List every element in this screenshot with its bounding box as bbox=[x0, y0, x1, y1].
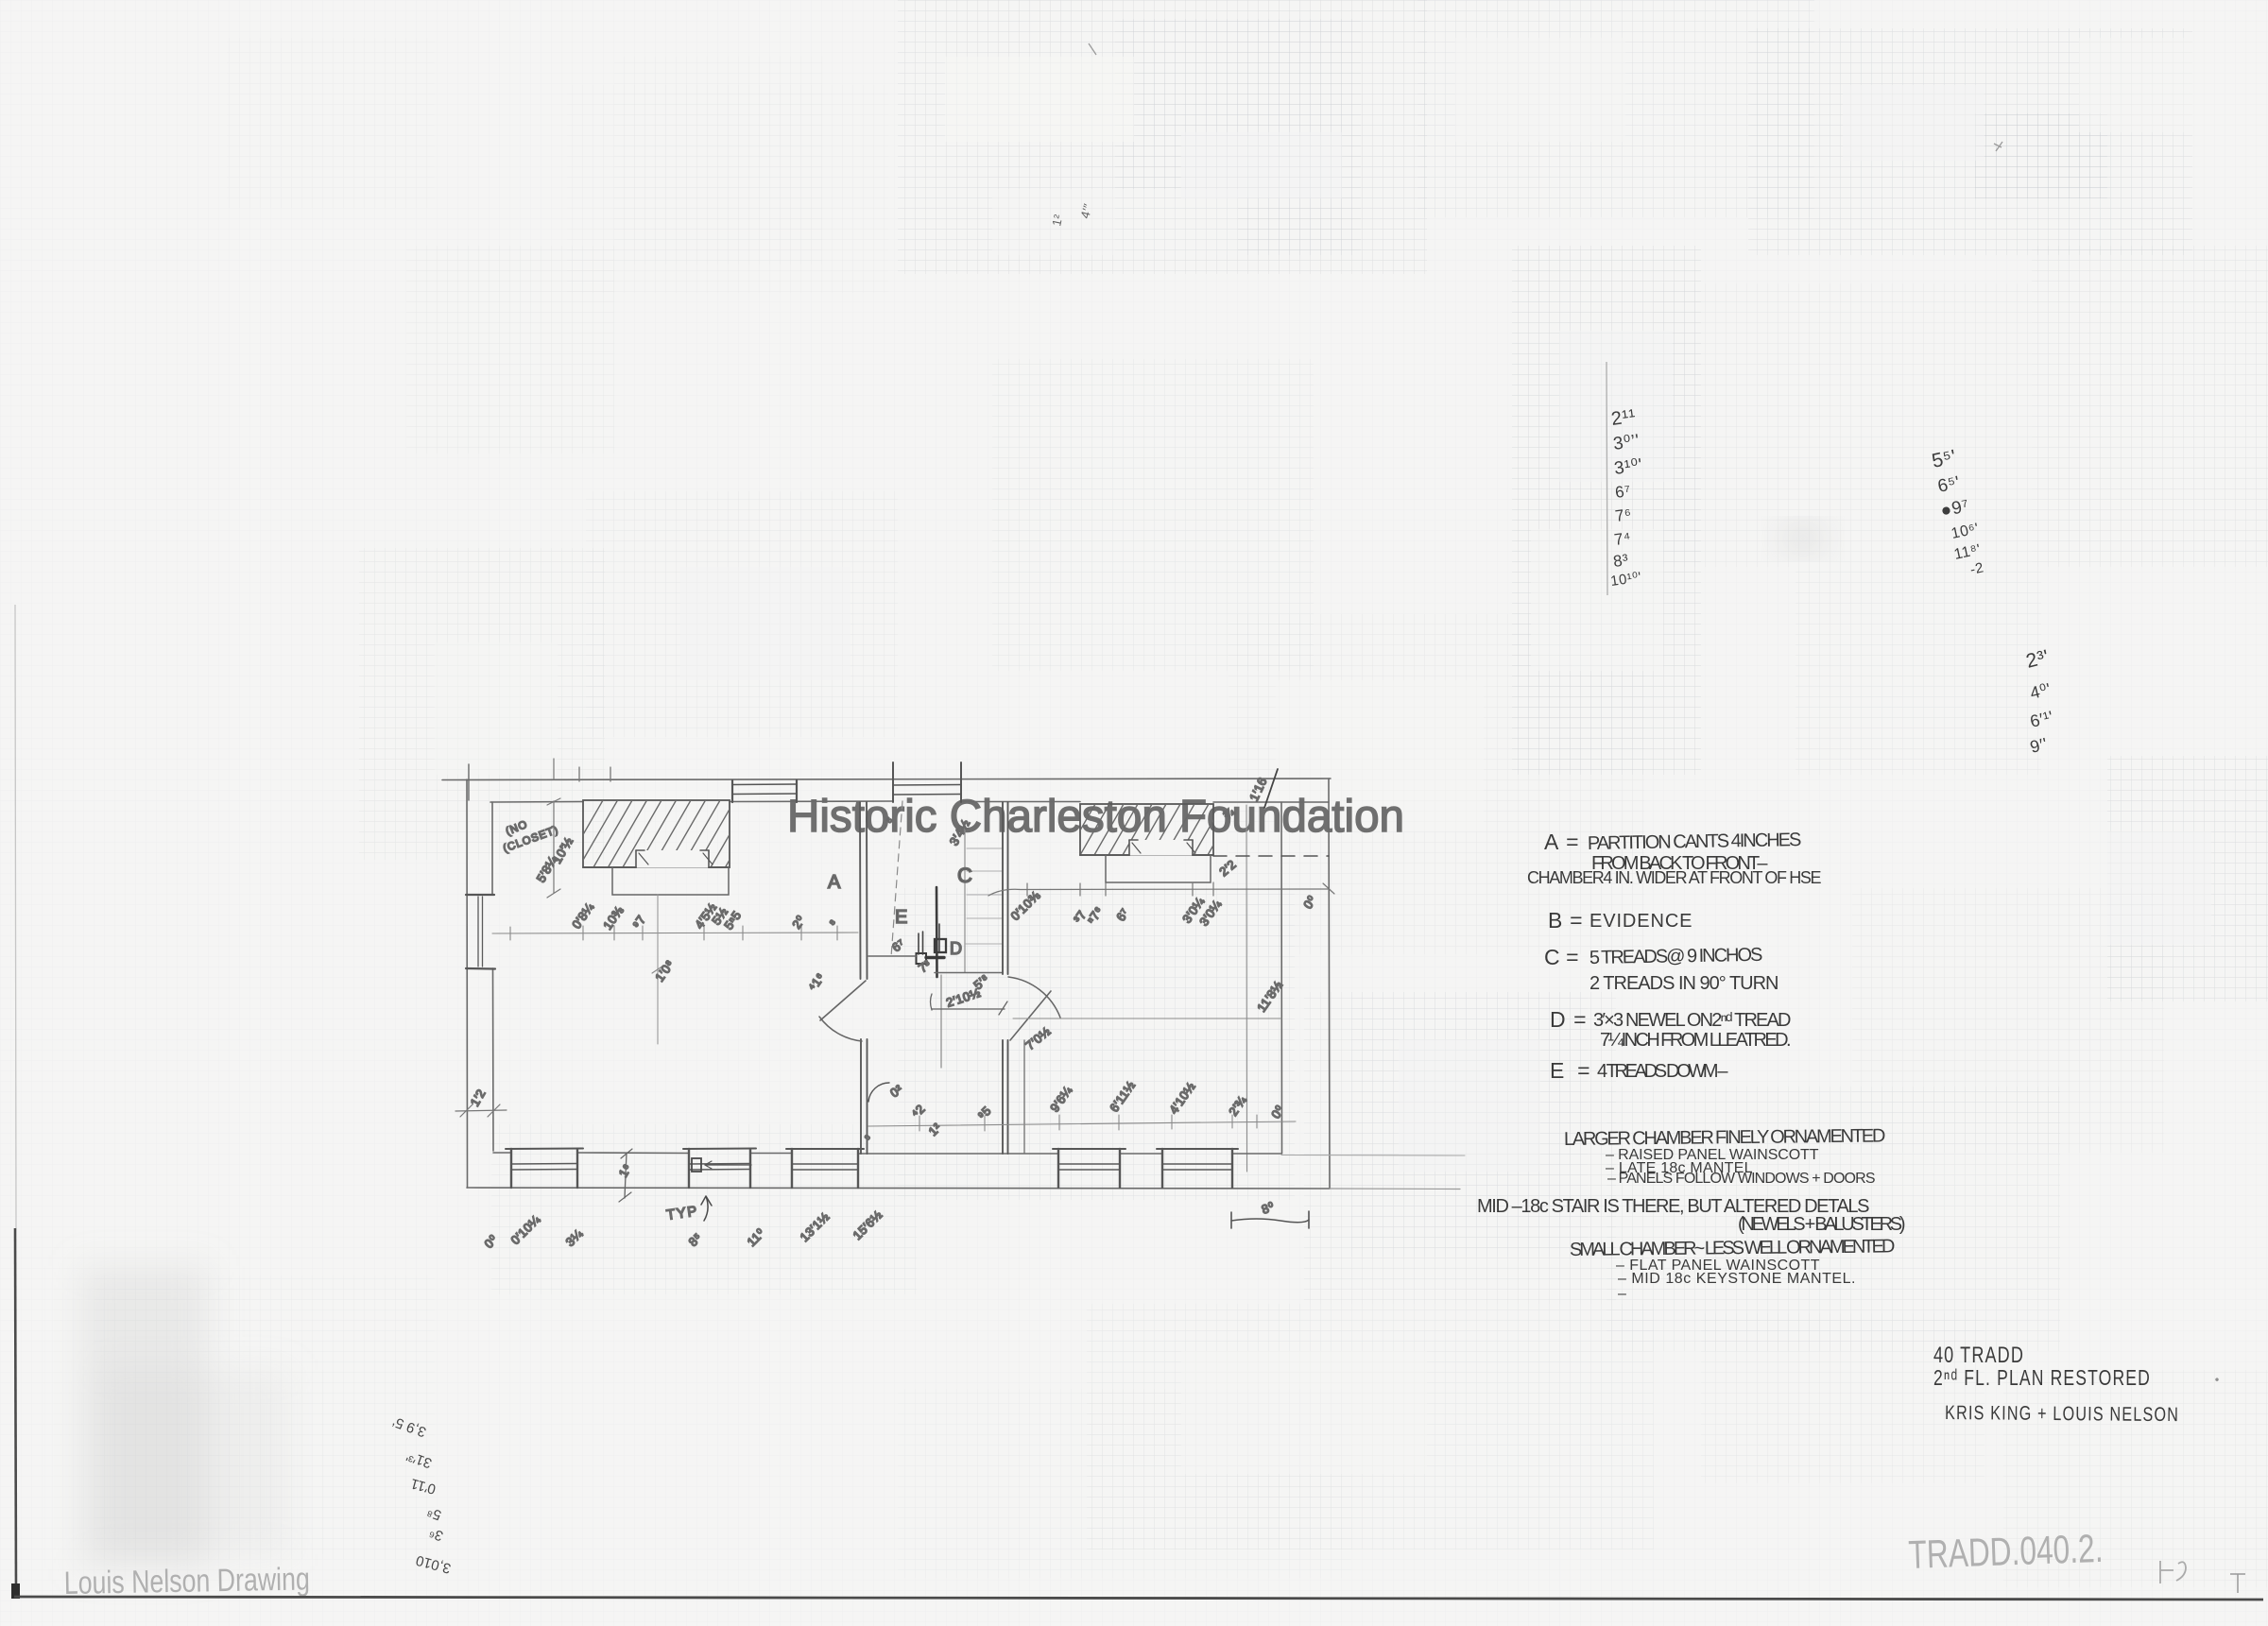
svg-text:8³: 8³ bbox=[1612, 551, 1630, 571]
svg-text:7¼INCH FROM LLEATRED.: 7¼INCH FROM LLEATRED. bbox=[1600, 1030, 1793, 1051]
svg-text:PARTITION CANTS 4INCHES: PARTITION CANTS 4INCHES bbox=[1588, 830, 1803, 854]
svg-text:4 TREADS DOWM –: 4 TREADS DOWM – bbox=[1597, 1061, 1729, 1082]
svg-text:D: D bbox=[950, 939, 963, 958]
svg-text:7⁴: 7⁴ bbox=[1613, 529, 1632, 549]
svg-text:3¹⁰ʹ: 3¹⁰ʹ bbox=[1613, 455, 1644, 479]
svg-text:6⁷: 6⁷ bbox=[1614, 482, 1632, 502]
svg-text:CHAMBER4 IN. WIDER AT FRONT: CHAMBER4 IN. WIDER AT FRONT OF HSE bbox=[1527, 868, 1823, 887]
svg-text:2 TREADS IN 90° TURN: 2 TREADS IN 90° TURN bbox=[1589, 973, 1780, 994]
svg-text:–: – bbox=[1618, 1286, 1627, 1302]
svg-text:E: E bbox=[895, 907, 908, 928]
svg-text:40 TRADD: 40 TRADD bbox=[1933, 1343, 2024, 1368]
svg-text:(NEWELS + BALUSTERS): (NEWELS + BALUSTERS) bbox=[1738, 1214, 1907, 1235]
svg-text:3⁰’ʹ: 3⁰’ʹ bbox=[1612, 431, 1641, 454]
svg-text:5 TREADS@ 9 INCHOS: 5 TREADS@ 9 INCHOS bbox=[1589, 945, 1764, 968]
svg-text:E =: E = bbox=[1550, 1058, 1591, 1083]
svg-text:Historic Charleston Foundation: Historic Charleston Foundation bbox=[787, 792, 1404, 842]
svg-text:C: C bbox=[957, 864, 973, 887]
svg-text:Louis Nelson Drawing: Louis Nelson Drawing bbox=[63, 1561, 310, 1601]
svg-text:A: A bbox=[828, 872, 841, 893]
svg-text:3′×3 NEWEL ON2ⁿᵈ TREAD: 3′×3 NEWEL ON2ⁿᵈ TREAD bbox=[1593, 1010, 1793, 1031]
svg-text:7⁶: 7⁶ bbox=[1614, 505, 1633, 525]
svg-text:KRIS KING + LOUIS NELSON: KRIS KING + LOUIS NELSON bbox=[1945, 1402, 2179, 1426]
svg-text:EVIDENCE: EVIDENCE bbox=[1589, 911, 1693, 932]
svg-text:TRADD.040.2.: TRADD.040.2. bbox=[1908, 1526, 2105, 1577]
svg-text:– MID 18c KEYSTONE MANTEL.: – MID 18c KEYSTONE MANTEL. bbox=[1618, 1271, 1857, 1287]
svg-text:2ⁿᵈ FL. PLAN RESTORED: 2ⁿᵈ FL. PLAN RESTORED bbox=[1933, 1365, 2151, 1390]
svg-text:2¹¹: 2¹¹ bbox=[1610, 406, 1638, 430]
svg-text:– PANELS FOLLOW WINDOWS + DOO: – PANELS FOLLOW WINDOWS + DOORS bbox=[1607, 1171, 1877, 1187]
